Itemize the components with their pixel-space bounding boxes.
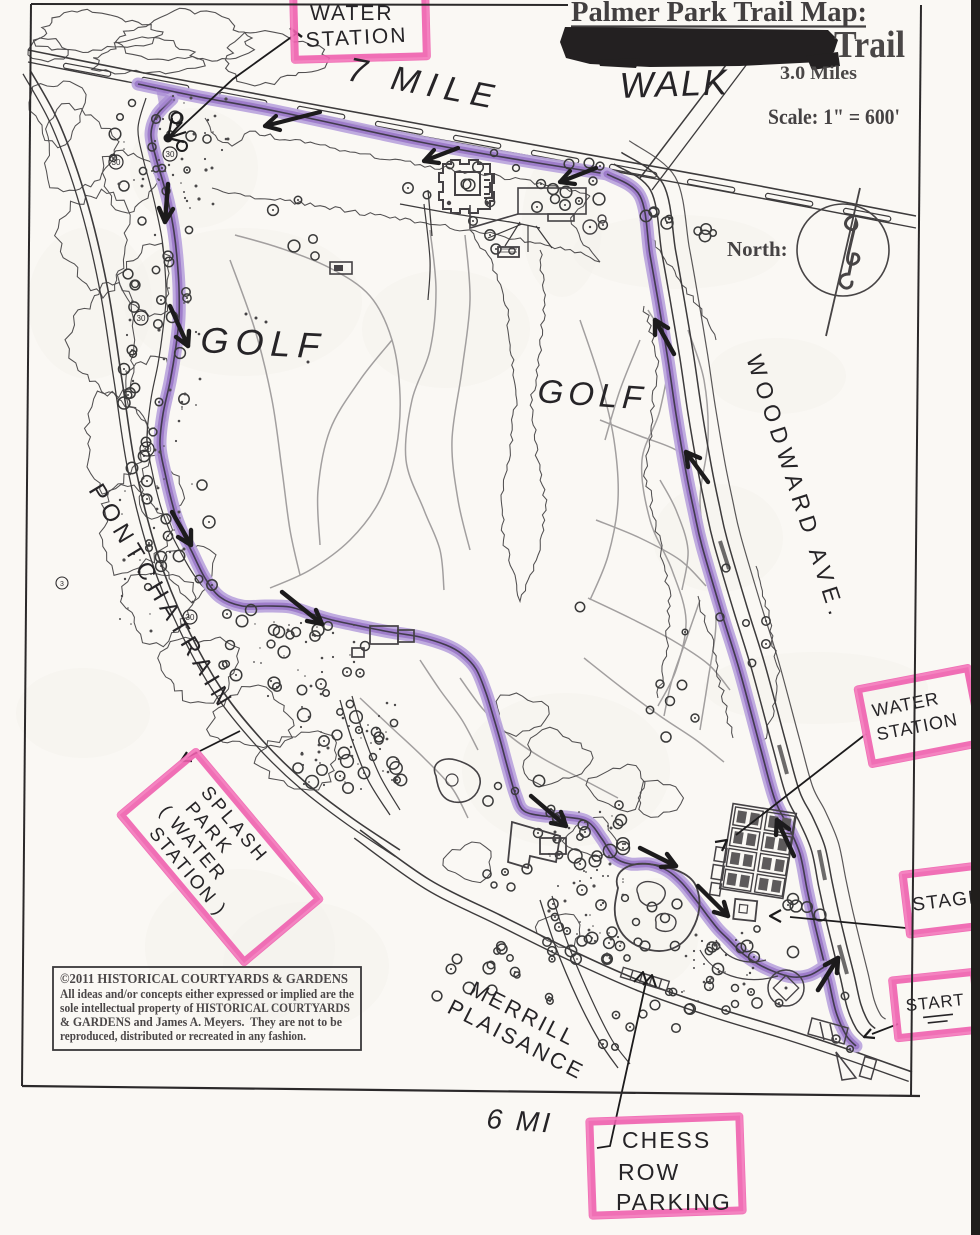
svg-text:All ideas and/or concepts eith: All ideas and/or concepts either express… — [60, 987, 354, 1001]
svg-text:reproduced, distributed or rec: reproduced, distributed or recreated in … — [60, 1029, 306, 1043]
svg-text:Palmer Park Trail Map:: Palmer Park Trail Map: — [571, 0, 867, 28]
svg-text:©2011 HISTORICAL COURTYARDS &: ©2011 HISTORICAL COURTYARDS & GARDENS — [60, 971, 348, 986]
svg-text:& GARDENS and James A. Meyers.: & GARDENS and James A. Meyers. They are … — [60, 1015, 342, 1029]
svg-text:CHESS: CHESS — [622, 1127, 711, 1153]
svg-text:6 MI: 6 MI — [486, 1103, 554, 1139]
svg-text:sole intellectual property of: sole intellectual property of HISTORICAL… — [60, 1001, 350, 1015]
svg-text:Scale: 1" = 600': Scale: 1" = 600' — [768, 104, 900, 129]
svg-text:GOLF: GOLF — [537, 372, 649, 417]
svg-text:3: 3 — [60, 581, 64, 588]
svg-text:30: 30 — [143, 445, 152, 454]
svg-text:Trail: Trail — [834, 24, 905, 66]
svg-text:3.0 Miles: 3.0 Miles — [780, 63, 857, 84]
svg-text:North:: North: — [727, 237, 788, 261]
svg-text:30: 30 — [137, 314, 146, 323]
svg-text:GOLF: GOLF — [200, 319, 328, 367]
svg-text:30: 30 — [112, 158, 121, 167]
svg-text:ROW: ROW — [618, 1159, 680, 1185]
svg-text:30: 30 — [166, 150, 175, 159]
svg-text:PARKING: PARKING — [616, 1189, 732, 1215]
